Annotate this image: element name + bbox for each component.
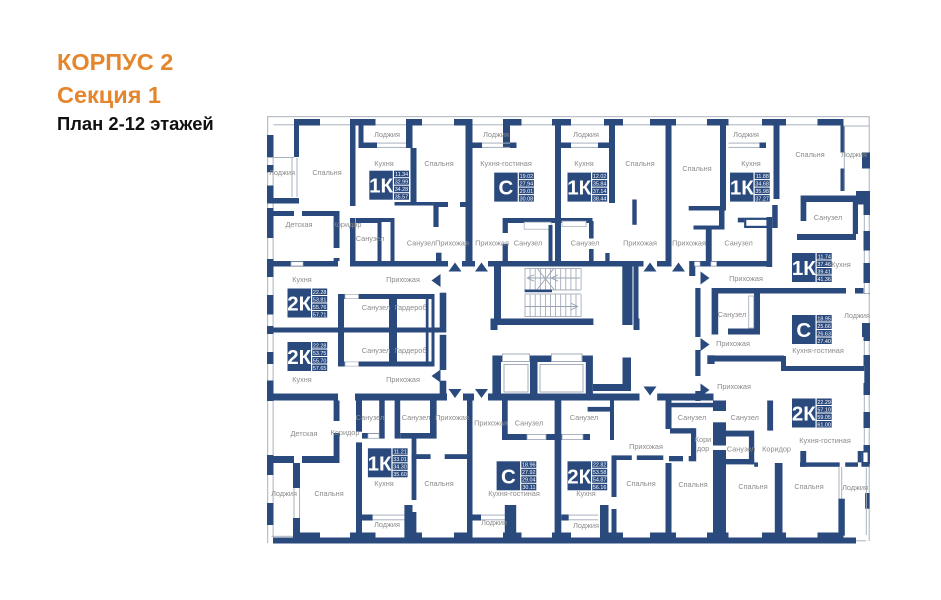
svg-text:Спальня: Спальня (314, 489, 343, 498)
svg-text:11.88: 11.88 (756, 174, 769, 180)
svg-text:Спальня: Спальня (738, 482, 767, 491)
svg-text:Гардероб: Гардероб (394, 346, 426, 355)
svg-text:34.28: 34.28 (395, 187, 409, 193)
svg-text:Детская: Детская (290, 429, 317, 438)
svg-text:2К: 2К (287, 293, 311, 316)
svg-text:Спальня: Спальня (625, 159, 654, 168)
svg-text:27.92: 27.92 (522, 470, 536, 476)
svg-text:Кухня: Кухня (374, 479, 394, 488)
svg-text:Кухня: Кухня (292, 375, 312, 384)
svg-text:Санузел: Санузел (678, 413, 706, 422)
svg-text:53.81: 53.81 (313, 297, 327, 303)
svg-text:61.00: 61.00 (817, 422, 831, 428)
svg-text:12.02: 12.02 (593, 174, 607, 180)
svg-text:Спальня: Спальня (678, 480, 707, 489)
svg-text:Санузел: Санузел (362, 346, 390, 355)
svg-text:Прихожая: Прихожая (623, 239, 657, 248)
svg-text:22.82: 22.82 (593, 463, 607, 469)
svg-text:Кухня-гостиная: Кухня-гостиная (480, 159, 532, 168)
svg-text:11.74: 11.74 (818, 254, 831, 260)
svg-text:Спальня: Спальня (795, 150, 824, 159)
svg-text:Коридор: Коридор (695, 435, 711, 453)
svg-text:Прихожая: Прихожая (475, 239, 509, 248)
svg-text:Санузел: Санузел (814, 213, 842, 222)
svg-text:26.63: 26.63 (817, 331, 831, 337)
svg-text:1К: 1К (369, 175, 393, 198)
svg-text:Прихожая: Прихожая (386, 275, 420, 284)
svg-text:Прихожая: Прихожая (435, 413, 469, 422)
svg-text:Лоджия: Лоджия (374, 130, 400, 139)
svg-text:Кухня: Кухня (292, 275, 312, 284)
svg-text:1К: 1К (567, 177, 591, 200)
svg-text:2К: 2К (567, 465, 591, 488)
svg-text:Прихожая: Прихожая (474, 419, 508, 428)
svg-text:29.01: 29.01 (520, 189, 534, 195)
svg-text:Санузел: Санузел (515, 419, 543, 428)
svg-text:Кухня-гостиная: Кухня-гостиная (792, 346, 844, 355)
svg-text:30.11: 30.11 (522, 485, 535, 491)
svg-text:Спальня: Спальня (682, 164, 711, 173)
svg-text:Лоджия: Лоджия (271, 489, 297, 498)
svg-text:53.58: 53.58 (593, 470, 607, 476)
svg-text:Кухня-гостиная: Кухня-гостиная (799, 436, 851, 445)
svg-text:35.60: 35.60 (393, 472, 407, 478)
svg-text:Прихожая: Прихожая (672, 239, 706, 248)
svg-text:Лоджия: Лоджия (733, 130, 759, 139)
svg-text:35.98: 35.98 (755, 189, 769, 195)
svg-text:Лоджия: Лоджия (573, 521, 599, 530)
svg-text:54.87: 54.87 (593, 478, 607, 484)
svg-text:Санузел: Санузел (570, 413, 598, 422)
svg-text:Лоджия: Лоджия (842, 483, 868, 492)
svg-text:18.96: 18.96 (522, 463, 536, 469)
svg-text:Спальня: Спальня (312, 168, 341, 177)
svg-text:Лоджия: Лоджия (269, 168, 295, 177)
svg-text:С: С (796, 319, 811, 342)
svg-text:Санузел: Санузел (356, 234, 384, 243)
svg-text:Санузел: Санузел (356, 413, 384, 422)
svg-text:11.34: 11.34 (395, 172, 408, 178)
svg-text:35.84: 35.84 (593, 181, 607, 187)
svg-text:Лоджия: Лоджия (841, 150, 867, 159)
svg-text:Санузел: Санузел (724, 239, 752, 248)
svg-text:Спальня: Спальня (626, 479, 655, 488)
svg-text:56.16: 56.16 (593, 485, 607, 491)
svg-text:Прихожая: Прихожая (435, 239, 469, 248)
svg-text:Секция 1: Секция 1 (57, 82, 161, 108)
svg-text:22.29: 22.29 (817, 400, 831, 406)
svg-text:Кухня: Кухня (574, 159, 594, 168)
svg-text:34.30: 34.30 (393, 465, 407, 471)
svg-text:Спальня: Спальня (424, 479, 453, 488)
svg-text:Санузел: Санузел (362, 303, 390, 312)
svg-text:1К: 1К (730, 177, 754, 200)
svg-text:Лоджия: Лоджия (573, 130, 599, 139)
svg-text:Спальня: Спальня (794, 482, 823, 491)
svg-text:22.28: 22.28 (313, 290, 327, 296)
svg-text:57.10: 57.10 (817, 407, 831, 413)
svg-text:37.27: 37.27 (755, 196, 769, 202)
svg-text:57.71: 57.71 (313, 312, 327, 318)
svg-text:Детская: Детская (285, 220, 312, 229)
svg-text:34.68: 34.68 (755, 181, 769, 187)
svg-text:Санузел: Санузел (727, 445, 755, 454)
svg-text:Прихожая: Прихожая (716, 339, 750, 348)
svg-text:Лоджия: Лоджия (483, 130, 509, 139)
svg-text:37.14: 37.14 (593, 189, 607, 195)
svg-text:29.04: 29.04 (522, 478, 536, 484)
svg-text:27.94: 27.94 (520, 181, 534, 187)
svg-text:41.36: 41.36 (817, 277, 831, 283)
svg-text:30.08: 30.08 (520, 196, 534, 202)
svg-text:59.05: 59.05 (817, 415, 831, 421)
svg-text:Санузел: Санузел (571, 239, 599, 248)
svg-text:Лоджия: Лоджия (844, 311, 870, 320)
svg-text:57.65: 57.65 (313, 366, 327, 372)
svg-text:35.57: 35.57 (395, 195, 409, 201)
svg-text:19.02: 19.02 (520, 174, 534, 180)
svg-text:Кухня: Кухня (831, 260, 851, 269)
svg-text:2К: 2К (792, 403, 816, 426)
svg-text:Санузел: Санузел (514, 239, 542, 248)
svg-text:18.95: 18.95 (817, 316, 831, 322)
svg-text:Санузел: Санузел (407, 239, 435, 248)
svg-text:25.66: 25.66 (817, 324, 831, 330)
svg-text:С: С (498, 177, 513, 200)
svg-text:Лоджия: Лоджия (481, 518, 507, 527)
svg-text:Лоджия: Лоджия (374, 520, 400, 529)
svg-text:2К: 2К (287, 346, 311, 369)
svg-text:22.28: 22.28 (313, 343, 327, 349)
svg-text:Коридор: Коридор (331, 428, 360, 437)
svg-text:Коридор: Коридор (762, 445, 791, 454)
svg-text:38.44: 38.44 (593, 196, 607, 202)
svg-text:11.21: 11.21 (394, 450, 407, 456)
svg-text:Санузел: Санузел (718, 310, 746, 319)
svg-text:Санузел: Санузел (730, 413, 758, 422)
svg-text:План 2-12 этажей: План 2-12 этажей (57, 113, 214, 134)
svg-text:Спальня: Спальня (424, 159, 453, 168)
svg-text:55.70: 55.70 (313, 358, 327, 364)
svg-text:КОРПУС 2: КОРПУС 2 (57, 49, 173, 75)
svg-text:37.46: 37.46 (817, 262, 831, 268)
svg-text:Прихожая: Прихожая (629, 442, 663, 451)
svg-text:33.01: 33.01 (393, 457, 407, 463)
svg-text:53.75: 53.75 (313, 351, 327, 357)
svg-text:Прихожая: Прихожая (386, 375, 420, 384)
svg-text:Санузел: Санузел (402, 413, 430, 422)
svg-text:Кухня: Кухня (741, 159, 761, 168)
svg-text:Гардероб: Гардероб (394, 303, 426, 312)
svg-text:Прихожая: Прихожая (729, 274, 763, 283)
svg-text:32.99: 32.99 (395, 180, 409, 186)
svg-text:1К: 1К (368, 452, 392, 475)
svg-text:39.41: 39.41 (817, 269, 831, 275)
svg-text:Коридор: Коридор (333, 220, 362, 229)
svg-text:С: С (501, 465, 516, 488)
svg-text:Прихожая: Прихожая (717, 382, 751, 391)
svg-text:27.40: 27.40 (817, 339, 831, 345)
svg-text:55.76: 55.76 (313, 305, 327, 311)
svg-text:Кухня: Кухня (374, 159, 394, 168)
svg-text:1К: 1К (792, 257, 816, 280)
